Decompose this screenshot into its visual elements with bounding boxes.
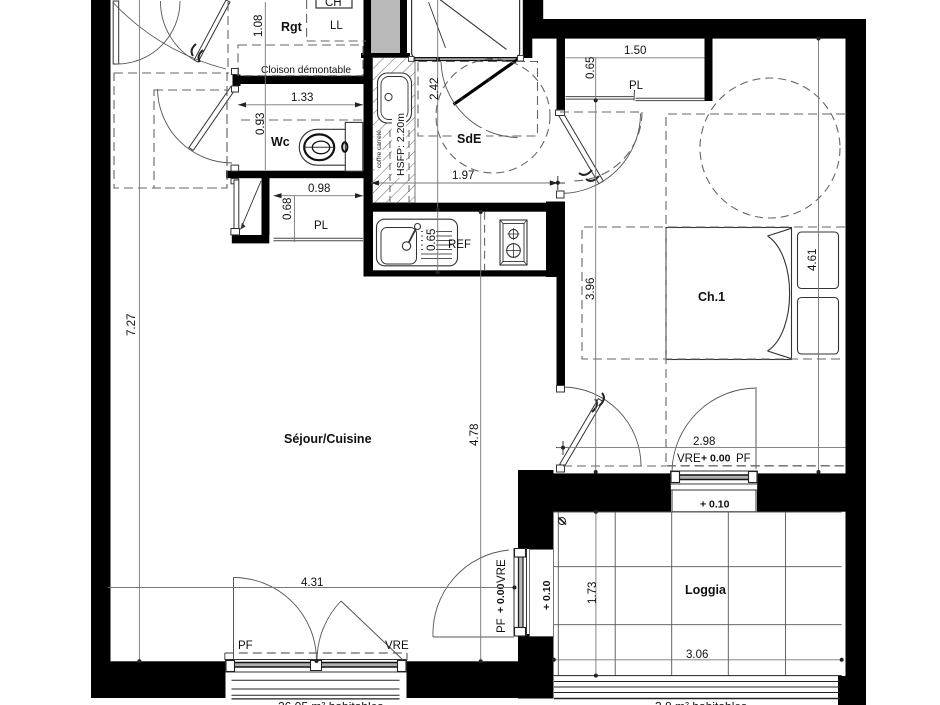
svg-text:Wc: Wc — [271, 135, 290, 149]
svg-text:PL: PL — [629, 80, 644, 92]
svg-text:0.65: 0.65 — [585, 57, 597, 79]
svg-text:Cloison démontable: Cloison démontable — [261, 65, 351, 76]
svg-text:PL: PL — [314, 220, 329, 232]
svg-text:+ 0.10: + 0.10 — [541, 580, 553, 610]
svg-text:CH: CH — [325, 0, 342, 9]
svg-text:2.98: 2.98 — [693, 436, 715, 448]
svg-text:0.68: 0.68 — [282, 198, 294, 220]
svg-text:0.98: 0.98 — [308, 183, 330, 195]
svg-text:PF: PF — [736, 453, 751, 465]
svg-text:4.78: 4.78 — [469, 424, 481, 446]
svg-text:1.08: 1.08 — [253, 15, 265, 37]
svg-text:REF: REF — [448, 239, 471, 251]
svg-text:7.27: 7.27 — [126, 314, 138, 336]
svg-text:coffre carrelé: coffre carrelé — [376, 130, 383, 168]
svg-text:3.96: 3.96 — [585, 278, 597, 300]
svg-text:3.8 m² habitables: 3.8 m² habitables — [655, 700, 747, 705]
svg-text:+ 0.10: + 0.10 — [700, 499, 730, 511]
svg-text:LL: LL — [330, 20, 343, 32]
svg-text:2.42: 2.42 — [429, 78, 441, 100]
svg-text:Rgt: Rgt — [281, 20, 303, 34]
svg-text:0.65: 0.65 — [426, 229, 438, 251]
svg-text:1.97: 1.97 — [452, 170, 474, 182]
svg-text:HSFP: 2.20m: HSFP: 2.20m — [395, 113, 407, 176]
svg-text:VRE: VRE — [496, 559, 508, 583]
svg-text:4.61: 4.61 — [807, 249, 819, 271]
svg-text:1.33: 1.33 — [291, 92, 313, 104]
svg-text:Ch.1: Ch.1 — [698, 290, 725, 304]
svg-text:VRE: VRE — [385, 640, 409, 652]
svg-text:Séjour/Cuisine: Séjour/Cuisine — [284, 432, 372, 446]
svg-text:Loggia: Loggia — [685, 583, 727, 597]
svg-text:3.06: 3.06 — [686, 649, 708, 661]
svg-text:4.31: 4.31 — [301, 577, 323, 589]
svg-text:26.05 m² habitables: 26.05 m² habitables — [278, 700, 383, 705]
svg-text:PF: PF — [496, 618, 508, 633]
svg-text:VRE: VRE — [677, 453, 701, 465]
svg-text:PF: PF — [238, 640, 253, 652]
svg-text:1.73: 1.73 — [587, 582, 599, 604]
svg-text:SdE: SdE — [457, 132, 481, 146]
svg-text:1.50: 1.50 — [624, 45, 646, 57]
svg-text:+ 0.00: + 0.00 — [701, 453, 731, 465]
svg-text:0.93: 0.93 — [255, 113, 267, 135]
